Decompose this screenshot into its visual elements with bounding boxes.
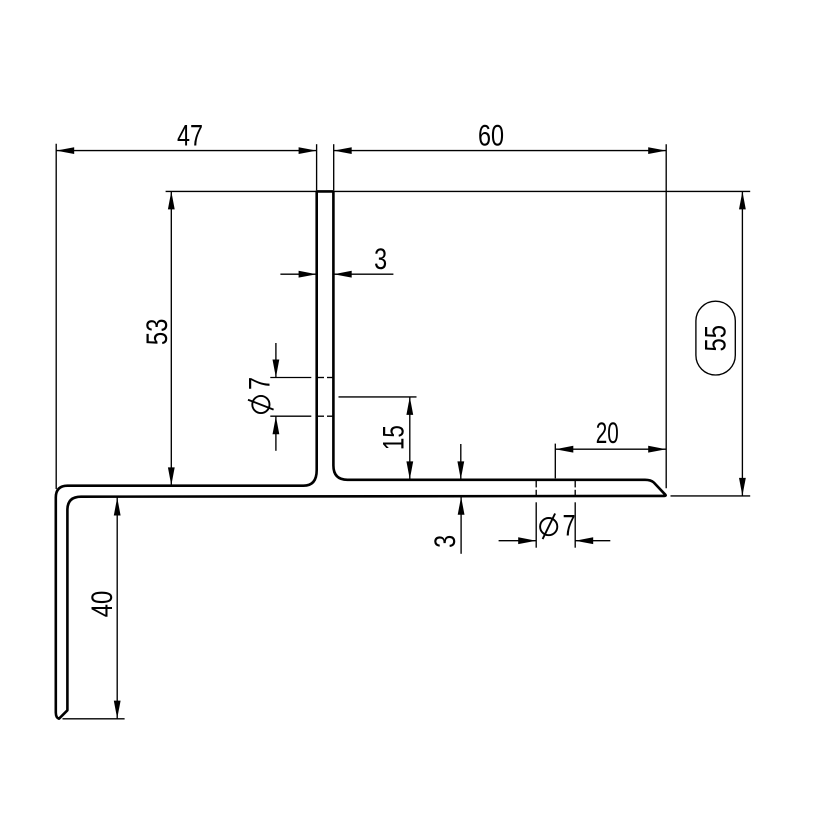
svg-text:3: 3 [374,243,387,276]
svg-text:7: 7 [244,377,277,390]
svg-text:55: 55 [699,325,732,352]
svg-text:40: 40 [86,591,119,618]
svg-text:3: 3 [429,535,462,548]
svg-text:20: 20 [596,417,619,450]
svg-text:53: 53 [141,319,174,346]
svg-text:60: 60 [478,119,504,152]
svg-text:47: 47 [177,119,203,152]
svg-text:15: 15 [377,425,410,450]
svg-text:7: 7 [563,509,576,542]
